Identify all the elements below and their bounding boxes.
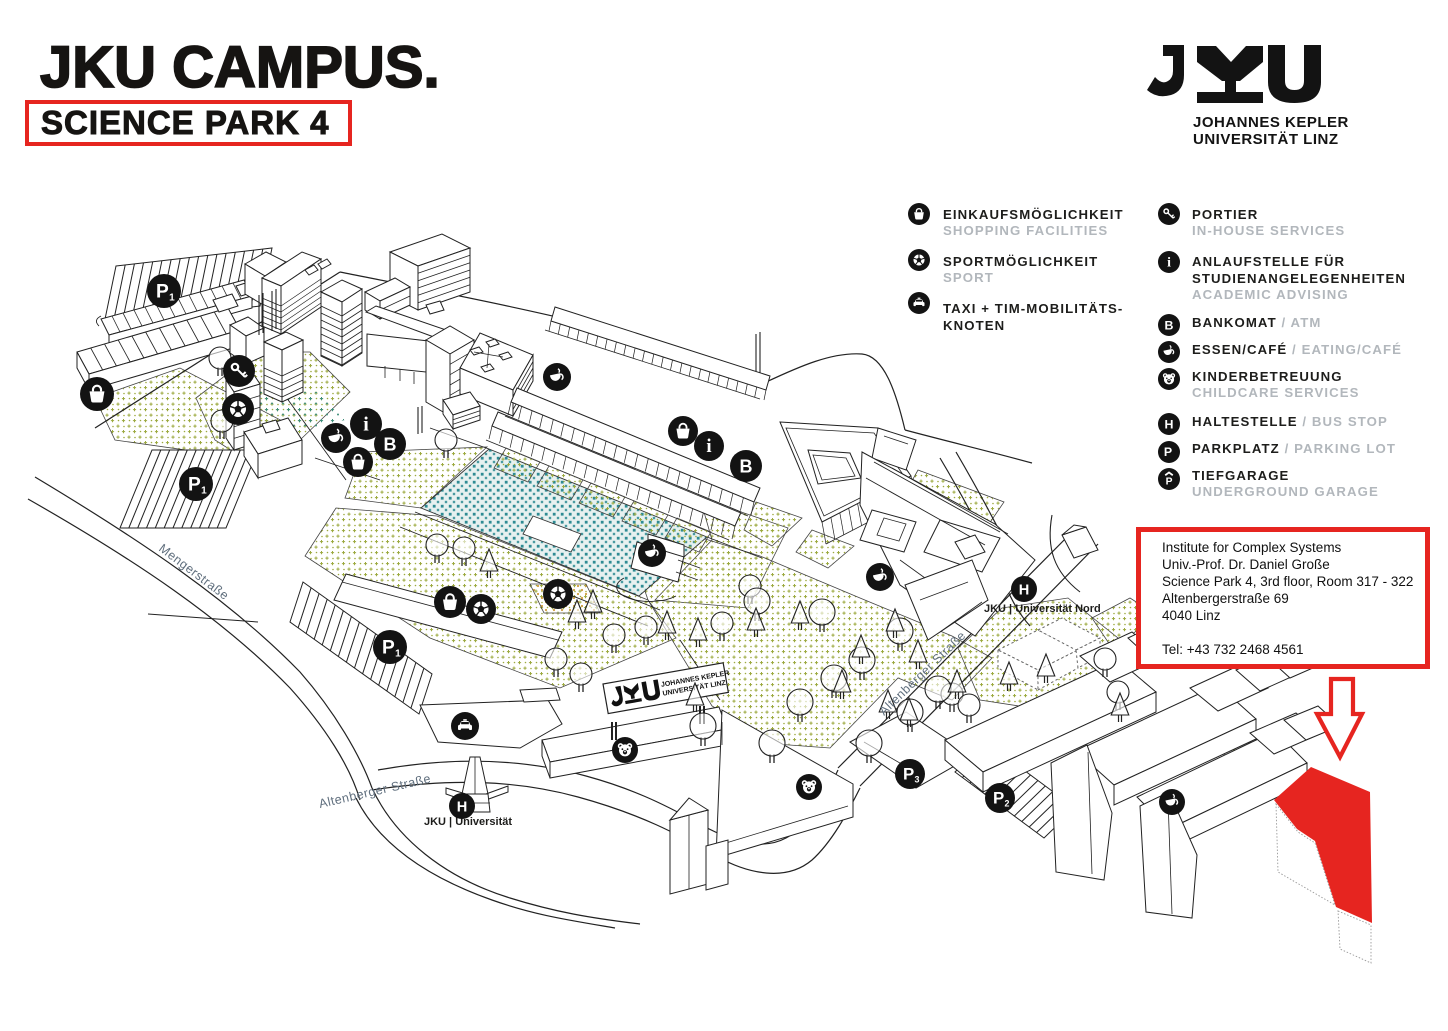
svg-text:P: P xyxy=(1166,477,1173,488)
svg-text:B: B xyxy=(384,435,397,455)
svg-text:H: H xyxy=(457,799,468,815)
svg-text:H: H xyxy=(1165,417,1174,431)
svg-text:P: P xyxy=(903,765,914,784)
svg-text:1: 1 xyxy=(169,293,175,304)
svg-text:JKU | Universität: JKU | Universität xyxy=(424,816,512,828)
svg-text:P: P xyxy=(1164,445,1172,459)
svg-text:UNIVERSITÄT LINZ: UNIVERSITÄT LINZ xyxy=(1193,131,1339,148)
svg-text:i: i xyxy=(1167,254,1171,269)
svg-text:2: 2 xyxy=(1005,798,1010,808)
svg-text:Mengerstraße: Mengerstraße xyxy=(156,541,231,603)
svg-text:JKU | Universität Nord: JKU | Universität Nord xyxy=(984,603,1101,615)
svg-text:i: i xyxy=(706,436,711,457)
svg-text:3: 3 xyxy=(915,774,920,784)
svg-text:1: 1 xyxy=(395,649,401,660)
svg-text:P: P xyxy=(993,789,1004,808)
svg-text:B: B xyxy=(1165,318,1174,332)
svg-text:1: 1 xyxy=(201,486,207,497)
svg-text:H: H xyxy=(1019,582,1030,598)
svg-text:P: P xyxy=(188,474,201,495)
svg-text:P: P xyxy=(156,281,169,302)
svg-text:P: P xyxy=(382,637,395,658)
svg-text:Altenberger Straße: Altenberger Straße xyxy=(318,772,433,811)
svg-text:JOHANNES KEPLER: JOHANNES KEPLER xyxy=(1193,114,1349,131)
svg-text:i: i xyxy=(363,414,369,436)
svg-text:B: B xyxy=(740,457,753,477)
